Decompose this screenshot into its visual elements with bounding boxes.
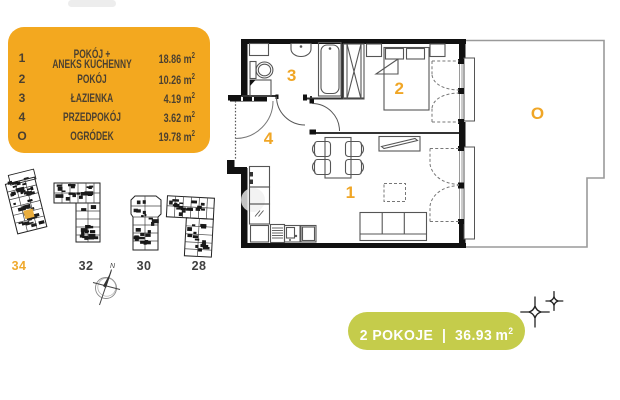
svg-text:N: N <box>110 263 116 270</box>
